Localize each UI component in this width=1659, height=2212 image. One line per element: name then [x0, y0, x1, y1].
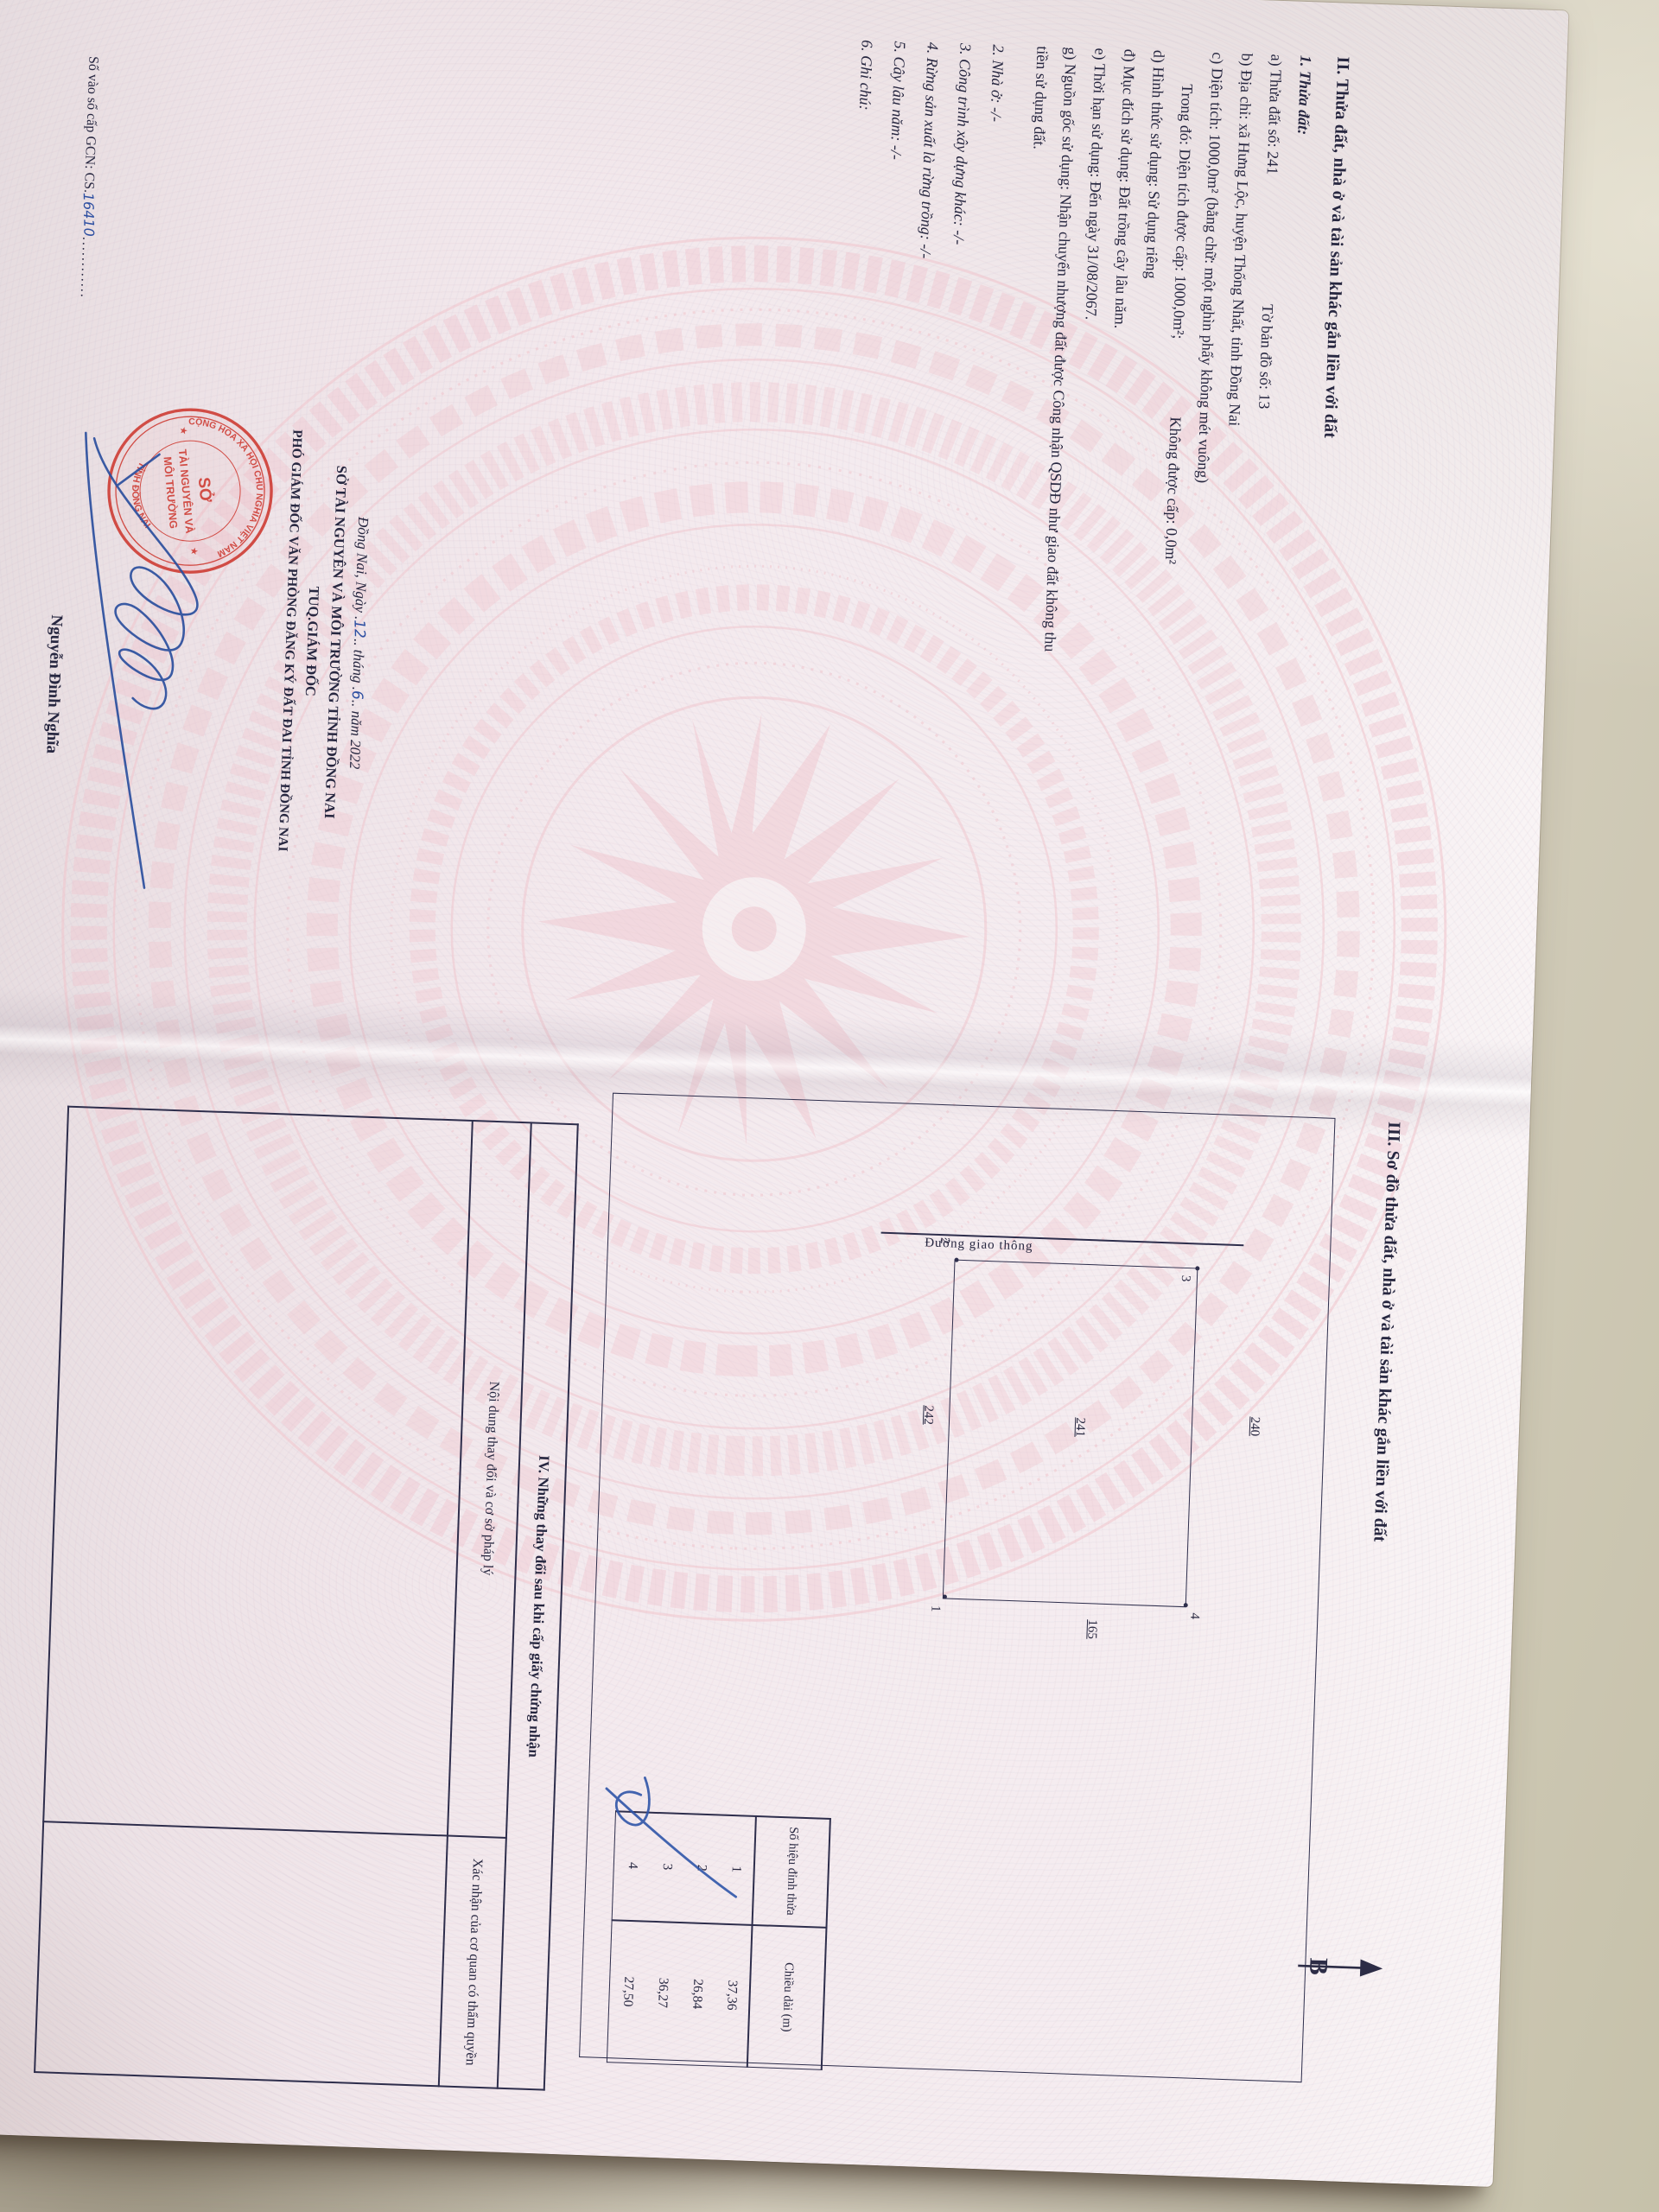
issue-year: .. năm 2022: [346, 700, 365, 770]
book-entry-dots: ............: [78, 237, 95, 300]
neighbor-parcel-165: 165: [1084, 1619, 1099, 1639]
line-land-origin-cont: tiền sử dụng đất.: [1029, 46, 1051, 149]
handwritten-pen-mark: [589, 1753, 768, 1941]
signature-scrawl: [51, 425, 240, 898]
handwritten-month: 6: [348, 690, 365, 700]
issue-mid: .. tháng .: [349, 639, 367, 691]
certificate-paper: II. Thửa đất, nhà ở và tài sản khác gắn …: [0, 0, 1568, 2187]
vertex-label-2: 2: [937, 1237, 951, 1244]
vertex-label-1: 1: [927, 1605, 942, 1612]
vertex-row3-length: 36,27: [643, 1923, 683, 2063]
changes-body-content-cell: [44, 1108, 471, 1834]
map-sheet-text: Tờ bản đồ số: 13: [1255, 304, 1276, 410]
photo-of-land-certificate: { "document": { "page2": { "section2_hea…: [0, 0, 1659, 2212]
parcel-outline: [943, 1260, 1198, 1608]
changes-col-confirm-header: Xác nhận của cơ quan có thẩm quyền: [442, 1839, 505, 2086]
parcel-section-heading: 1. Thửa đất:: [1294, 55, 1314, 136]
vertex-label-4: 4: [1186, 1612, 1201, 1619]
vertex-table-col2-header: Chiều dài (m): [750, 1926, 826, 2069]
item-notes: 6. Ghi chú:: [855, 40, 876, 111]
changes-table: IV. Những thay đổi sau khi cấp giấy chứn…: [34, 1106, 579, 2091]
vertex-row2-length: 26,84: [677, 1923, 717, 2064]
vertex-row1-length: 37,36: [712, 1924, 752, 2065]
parcel-number-text: a) Thửa đất số: 241: [1264, 54, 1286, 175]
north-arrow: B: [1294, 1945, 1385, 1990]
changes-body-confirm-cell: [35, 1824, 447, 2083]
vertex-label-3: 3: [1178, 1275, 1192, 1282]
item-house: 2. Nhà ở: -/-: [987, 44, 1007, 122]
spacer: [1262, 175, 1267, 304]
item-perennial: 5. Cây lâu năm: -/-: [887, 41, 909, 160]
handwritten-day: 12: [350, 620, 367, 639]
vertex-row4-length: 27,50: [608, 1921, 648, 2062]
book-entry-number: 16410: [80, 193, 98, 237]
vertex-table-col1-header: Số hiệu đỉnh thửa: [755, 1817, 829, 1925]
book-entry-label: Số vào sổ cấp GCN: CS.: [81, 56, 101, 194]
spacer: [1171, 339, 1173, 416]
